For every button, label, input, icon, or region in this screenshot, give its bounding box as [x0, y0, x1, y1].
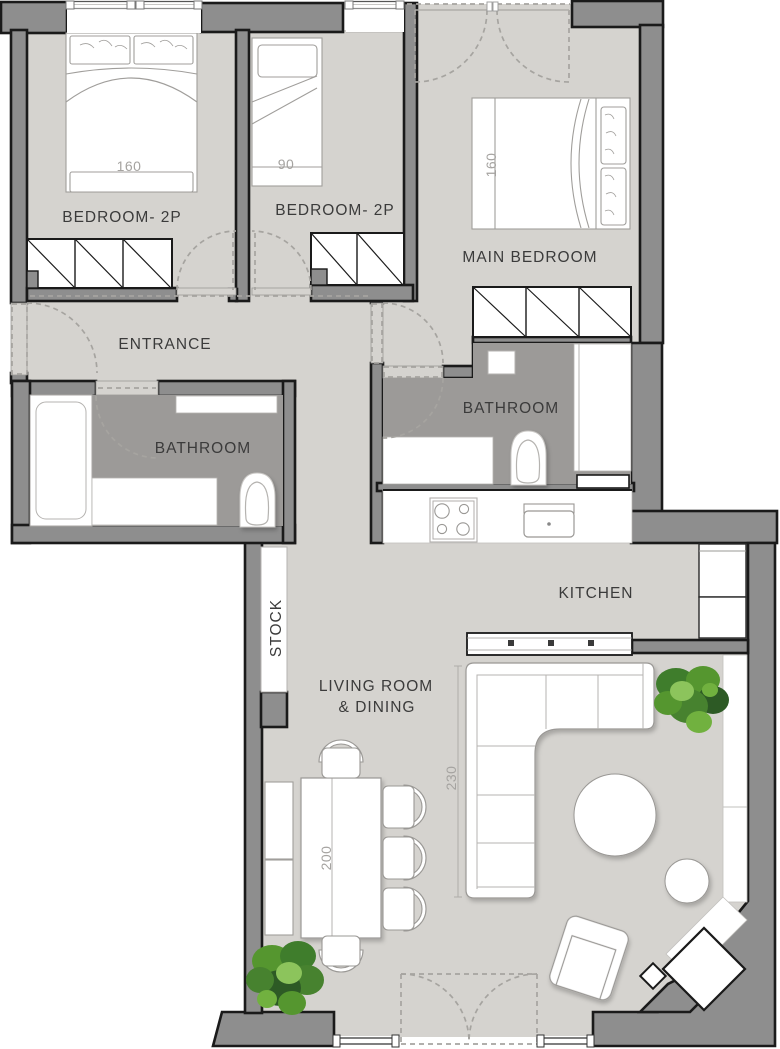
svg-text:BATHROOM: BATHROOM — [463, 400, 559, 417]
svg-text:160: 160 — [117, 158, 142, 174]
svg-text:KITCHEN: KITCHEN — [558, 585, 633, 602]
svg-text:& DINING: & DINING — [339, 699, 416, 716]
svg-text:230: 230 — [443, 766, 459, 791]
svg-text:90: 90 — [278, 156, 295, 172]
svg-text:MAIN BEDROOM: MAIN BEDROOM — [462, 249, 597, 266]
svg-text:ENTRANCE: ENTRANCE — [118, 336, 211, 353]
svg-text:BEDROOM- 2P: BEDROOM- 2P — [62, 209, 182, 226]
svg-text:LIVING ROOM: LIVING ROOM — [319, 678, 433, 695]
svg-text:BATHROOM: BATHROOM — [155, 440, 251, 457]
svg-text:STOCK: STOCK — [268, 599, 285, 657]
svg-text:200: 200 — [318, 846, 334, 871]
svg-text:BEDROOM- 2P: BEDROOM- 2P — [275, 202, 395, 219]
svg-text:160: 160 — [483, 153, 499, 178]
